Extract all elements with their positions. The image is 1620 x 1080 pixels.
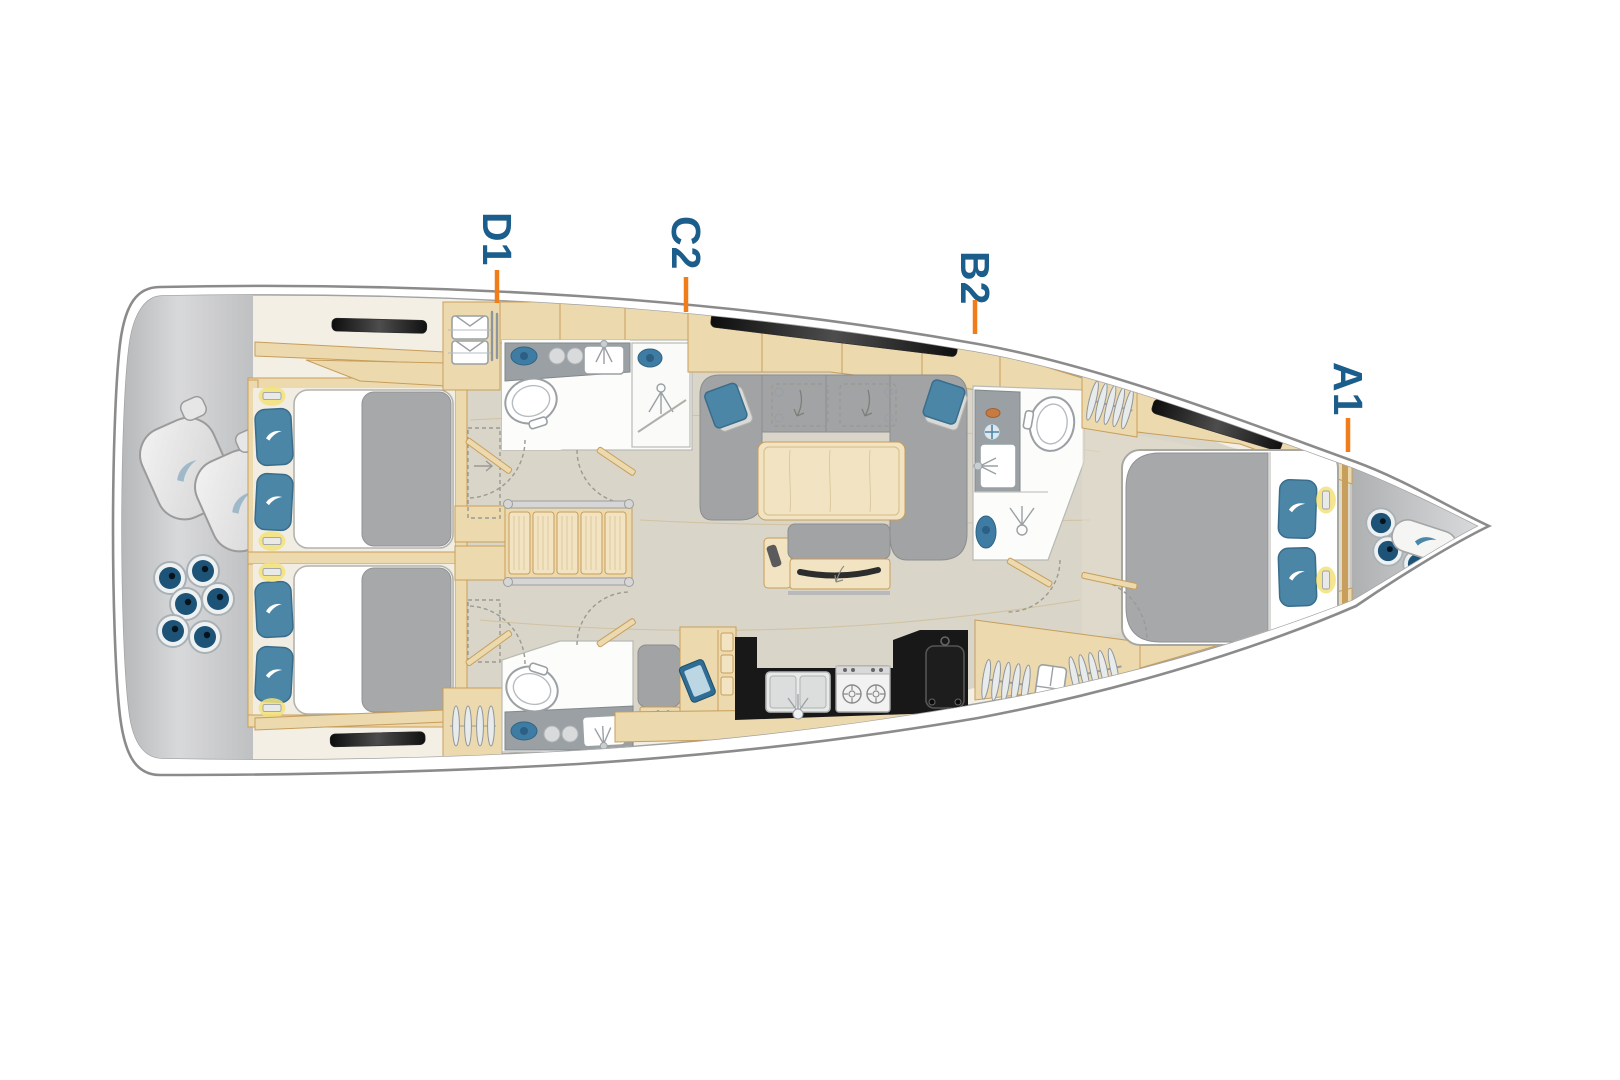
- cabin-marker-label[interactable]: C2: [663, 216, 709, 270]
- shower-stall: [632, 343, 690, 447]
- pillow-icon: [255, 408, 294, 466]
- sink-icon: [766, 672, 830, 719]
- pillow-icon: [1278, 547, 1317, 606]
- cabin-marker-label[interactable]: B2: [952, 251, 998, 305]
- fridge-icon: [926, 637, 964, 708]
- deck-plan-canvas: D1 C2 B2 A1: [0, 0, 1620, 1080]
- saloon-table: [758, 442, 905, 520]
- pillow-icon: [255, 473, 294, 531]
- stove-icon: [836, 666, 890, 712]
- reading-light-icon: [1316, 567, 1336, 594]
- pillow-icon: [255, 581, 294, 638]
- cabin-marker-d1[interactable]: D1: [474, 212, 520, 303]
- handrail: [505, 578, 632, 585]
- hull-window-icon: [330, 732, 425, 747]
- handrail: [505, 501, 632, 508]
- reading-light-icon: [259, 386, 286, 406]
- pillow-icon: [255, 646, 294, 703]
- cabin-marker-a1[interactable]: A1: [1325, 362, 1371, 452]
- reading-light-icon: [259, 531, 286, 551]
- soap-icon: [986, 409, 1000, 418]
- reading-light-icon: [259, 698, 286, 718]
- sink-icon: [974, 444, 1016, 488]
- reading-light-icon: [259, 562, 286, 582]
- aft-cabin-starboard: [248, 562, 467, 727]
- pillow-icon: [1278, 479, 1317, 538]
- double-bed-icon: [1122, 450, 1338, 645]
- sink-icon: [584, 341, 624, 375]
- reading-light-icon: [1316, 487, 1336, 514]
- cabin-marker-label[interactable]: A1: [1325, 362, 1371, 416]
- cabin-marker-c2[interactable]: C2: [663, 216, 709, 312]
- yacht-deck-plan: D1 C2 B2 A1: [0, 0, 1620, 1080]
- cabin-marker-b2[interactable]: B2: [952, 251, 998, 334]
- cabin-divider-wall: [248, 552, 465, 564]
- stair-treads: [509, 512, 626, 574]
- hull-window-icon: [332, 318, 427, 333]
- cabin-marker-label[interactable]: D1: [474, 212, 520, 266]
